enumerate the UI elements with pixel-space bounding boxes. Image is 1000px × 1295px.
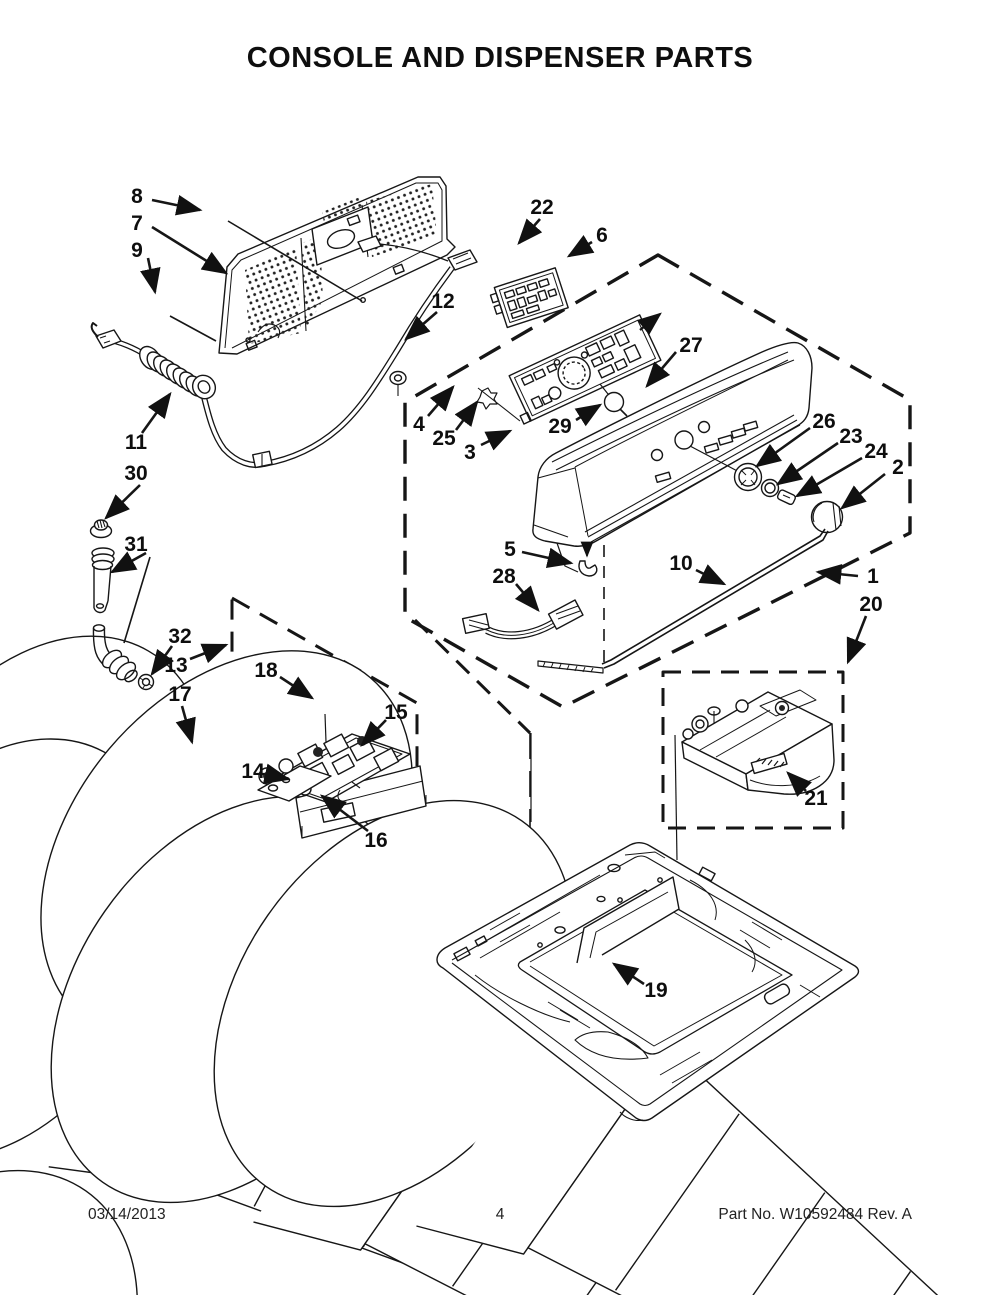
- knob-stack: [735, 464, 843, 533]
- service-manual-page: CONSOLE AND DISPENSER PARTS: [0, 0, 1000, 1295]
- cord-grommet: [91, 520, 112, 538]
- leader-plain-lines: [124, 557, 150, 643]
- control-board: [489, 268, 569, 330]
- footer-part-number: Part No. W10592484 Rev. A: [718, 1206, 912, 1224]
- dispenser-drawer: [682, 690, 834, 794]
- board-clip: [477, 388, 520, 421]
- harness-eyelet: [390, 372, 406, 397]
- parts-diagram: [0, 0, 1000, 1295]
- console-clip: [579, 561, 597, 576]
- trim-strip: [538, 529, 828, 673]
- tube-washer: [139, 675, 154, 690]
- wire-ribbon: [463, 600, 583, 635]
